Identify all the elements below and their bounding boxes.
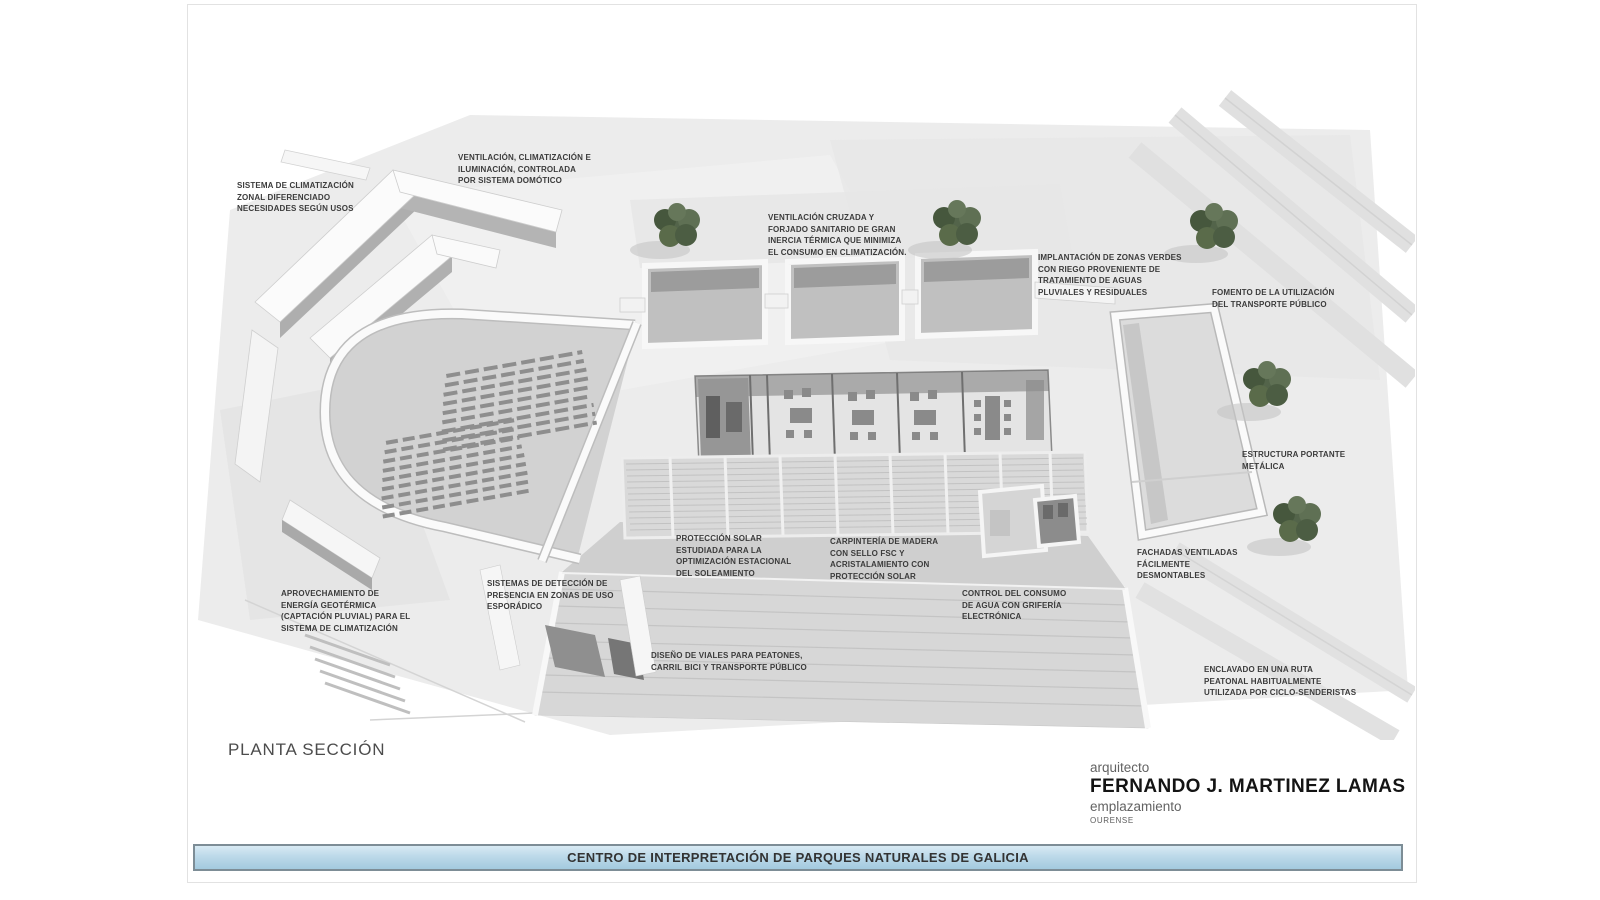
annotation-diseno-viales: DISEÑO DE VIALES PARA PEATONES, CARRIL B… (651, 650, 807, 673)
annotation-carpinteria-madera: CARPINTERÍA DE MADERA CON SELLO FSC Y AC… (830, 536, 938, 582)
architect-label: arquitecto (1090, 761, 1405, 776)
annotation-deteccion-presencia: SISTEMAS DE DETECCIÓN DE PRESENCIA EN ZO… (487, 578, 614, 613)
project-title-bar: CENTRO DE INTERPRETACIÓN DE PARQUES NATU… (193, 844, 1403, 871)
location-label: emplazamiento (1090, 800, 1405, 815)
annotation-estructura-metalica: ESTRUCTURA PORTANTE METÁLICA (1242, 449, 1345, 472)
annotation-ventilacion-cruzada: VENTILACIÓN CRUZADA Y FORJADO SANITARIO … (768, 212, 907, 258)
architect-name: FERNANDO J. MARTINEZ LAMAS (1090, 777, 1405, 798)
annotation-control-agua: CONTROL DEL CONSUMO DE AGUA CON GRIFERÍA… (962, 588, 1066, 623)
annotation-zonas-verdes: IMPLANTACIÓN DE ZONAS VERDES CON RIEGO P… (1038, 252, 1182, 298)
annotation-fachadas-ventiladas: FACHADAS VENTILADAS FÁCILMENTE DESMONTAB… (1137, 547, 1238, 582)
drawing-title: PLANTA SECCIÓN (228, 740, 385, 760)
screenshot-root: { "board": { "drawing_label": "PLANTA SE… (0, 0, 1600, 900)
annotation-climatizacion-zonal: SISTEMA DE CLIMATIZACIÓN ZONAL DIFERENCI… (237, 180, 354, 215)
annotation-ruta-peatonal: ENCLAVADO EN UNA RUTA PEATONAL HABITUALM… (1204, 664, 1356, 699)
annotation-ventilacion-domotica: VENTILACIÓN, CLIMATIZACIÓN E ILUMINACIÓN… (458, 152, 591, 187)
annotation-energia-geotermica: APROVECHAMIENTO DE ENERGÍA GEOTÉRMICA (C… (281, 588, 410, 634)
annotation-proteccion-solar: PROTECCIÓN SOLAR ESTUDIADA PARA LA OPTIM… (676, 533, 791, 579)
annotation-transporte-publico: FOMENTO DE LA UTILIZACIÓN DEL TRANSPORTE… (1212, 287, 1334, 310)
project-title: CENTRO DE INTERPRETACIÓN DE PARQUES NATU… (567, 850, 1029, 865)
site-plan-rendering (190, 80, 1415, 740)
credits-block: arquitecto FERNANDO J. MARTINEZ LAMAS em… (1090, 761, 1405, 825)
exhibition-rooms (695, 370, 1052, 464)
location-value: OURENSE (1090, 817, 1405, 826)
